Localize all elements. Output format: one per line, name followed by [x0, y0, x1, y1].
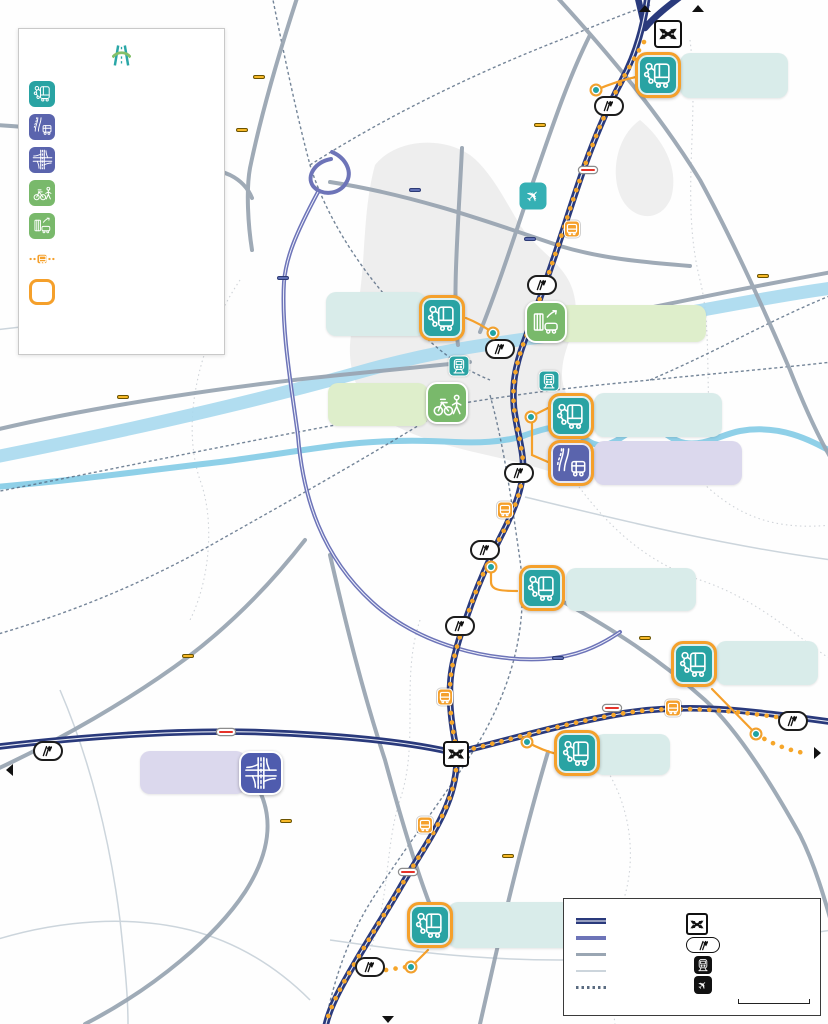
legend-row-axes-principaux: [576, 946, 680, 963]
road-badge-d910-north: [534, 123, 546, 127]
interchange-multimodal-icon: [29, 114, 55, 140]
exit-icon: [535, 279, 546, 291]
motorway-node-icon: [686, 913, 708, 935]
interchange-icon-joue: [239, 751, 283, 795]
train-icon: [451, 358, 468, 375]
legend-row-voies-ferrees: [576, 979, 680, 996]
road-badge-d943: [639, 636, 651, 640]
stop-dot-esvres: [750, 728, 763, 741]
scale-bar-line: [738, 999, 810, 1004]
road-badge-a85-west: [217, 729, 235, 735]
road-badge-d952-west: [117, 395, 129, 399]
legend-row-noeud: [686, 913, 810, 935]
marker-label-passerelles: [328, 383, 428, 426]
exit-20: [527, 275, 557, 295]
express-stop-icon-a85: [665, 700, 681, 717]
pem-icon-parcay: [635, 52, 681, 98]
road-badge-d910-south: [502, 854, 514, 858]
interchange-icon: [29, 147, 55, 173]
arrow-right-vierzon: [814, 747, 821, 759]
exit-21: [485, 339, 515, 359]
legend-symbols-column: ✈: [686, 913, 810, 1004]
pem-bus-network-icon: [677, 647, 711, 681]
arrow-down-bordeaux: [382, 1016, 394, 1023]
pem-bus-network-icon: [554, 399, 588, 433]
road-badge-m37-west: [277, 276, 289, 280]
road-badge-d751: [182, 654, 194, 658]
exit-icon: [453, 620, 464, 632]
roads-bus-icon: [554, 446, 588, 480]
motorway-node-icon-north: [654, 20, 682, 48]
acoustic-screen-icon-map: [525, 301, 567, 343]
marker-label-echangeur-joue: [140, 751, 246, 794]
legend-item-car-express: [29, 246, 214, 272]
crossing-arrows-icon: [445, 742, 467, 766]
interchange-roads-icon: [32, 149, 53, 170]
arrow-up-paris: [692, 5, 704, 12]
pem-icon-chambray: [519, 565, 565, 611]
bike-pedestrian-icon: [431, 387, 464, 420]
railway-line-swatch: [576, 986, 606, 989]
title-line-2: [29, 41, 214, 69]
cartographic-legend: ✈: [563, 898, 821, 1016]
exit-icon: [512, 467, 523, 479]
road-badge-d86: [280, 819, 292, 823]
station-icon-gare-tours: [449, 356, 470, 377]
road-badge-a10-south: [399, 869, 417, 875]
stop-dot-sorigny: [405, 961, 418, 974]
road-badge-d952-east: [757, 274, 769, 278]
road-badge-d959: [236, 128, 248, 132]
marker-label-pem-veigne: [594, 734, 670, 775]
motorway-pictogram-icon: [112, 44, 131, 66]
legend-row-aeroport: ✈: [686, 975, 810, 995]
stop-dot-chambray: [485, 561, 498, 574]
legend-row-autoroute: [576, 913, 680, 930]
road-badge-a10-north: [579, 167, 597, 173]
exit-icon: [493, 343, 504, 355]
interchange-roads-icon: [244, 756, 278, 790]
legend-item-ecrans: [29, 213, 214, 239]
exit-icon: [478, 544, 489, 556]
express-stop-icon-rochecorbon: [564, 221, 580, 238]
stop-dot-veigne: [521, 736, 534, 749]
bus-icon: [565, 222, 579, 237]
pem-icon-rochepinard: [548, 393, 594, 439]
pem-bus-network-icon: [560, 736, 594, 770]
bus-icon: [498, 503, 512, 518]
secondary-line-swatch: [576, 970, 606, 972]
pem-icon-veigne: [554, 730, 600, 776]
pem-icon-tours-centre: [419, 295, 465, 341]
airport-icon: ✈: [694, 976, 712, 994]
legend-lines-column: [576, 913, 680, 1004]
station-icon-gare-tgv: [539, 371, 560, 392]
dotted-line-bus-icon: [29, 251, 55, 267]
pem-bus-network-icon: [641, 58, 675, 92]
express-stop-icon-a10: [437, 689, 453, 706]
pem-icon-sorigny: [407, 902, 453, 948]
marker-label-pem-esvres: [716, 641, 818, 685]
legend-row-gare: [686, 955, 810, 975]
title-card: [18, 28, 225, 355]
motorway-node-icon-south: [443, 741, 469, 767]
express-line-icon: [29, 246, 55, 272]
express-stop-icon: [29, 279, 55, 305]
crossing-arrows-icon: [688, 915, 706, 934]
peripherique-line-swatch: [576, 936, 606, 940]
scale-bar: [738, 999, 810, 1004]
principal-line-swatch: [576, 953, 606, 957]
train-icon: [541, 373, 558, 390]
marker-label-echangeur-rochepinard: [594, 441, 742, 485]
exit-24-1: [355, 957, 385, 977]
bus-icon: [666, 701, 680, 716]
airport-icon-map: ✈: [520, 183, 547, 210]
bus-icon: [438, 690, 452, 705]
exit-22: [504, 463, 534, 483]
road-badge-m801-a: [409, 188, 421, 192]
exit-10: [778, 711, 808, 731]
pem-bus-network-icon: [425, 301, 459, 335]
legend-item-echangeur: [29, 147, 214, 173]
metro-station-icon: [694, 956, 712, 974]
plane-glyph: ✈: [521, 184, 545, 208]
legend-row-acces: [686, 935, 810, 955]
bike-pedestrian-icon: [32, 182, 53, 203]
legend-item-pem: [29, 81, 214, 107]
arrow-up-le-mans: [639, 5, 651, 12]
stop-dot-tours-centre: [487, 327, 500, 340]
train-icon: [696, 958, 710, 972]
legend-row-axes-secondaires: [576, 963, 680, 980]
road-badge-d938: [253, 75, 265, 79]
legend-item-passerelles: [29, 180, 214, 206]
legend-row-peripherique: [576, 930, 680, 947]
pem-icon-esvres: [671, 641, 717, 687]
legend-item-echangeur-multimodal: [29, 114, 214, 140]
exit-icon: [363, 961, 374, 973]
pem-icon: [29, 81, 55, 107]
road-badge-m801-b: [524, 237, 536, 241]
footbridge-icon-map: [426, 382, 468, 424]
road-badge-m37-south: [552, 656, 564, 660]
screen-car-icon: [530, 306, 562, 338]
marker-label-pem-rochepinard: [594, 393, 722, 437]
interchange-multimodal-icon-map: [548, 440, 594, 486]
acoustic-screen-icon: [29, 213, 55, 239]
road-badge-a85-east: [603, 705, 621, 711]
plane-glyph: ✈: [695, 977, 711, 993]
express-stop-icon-a10-south: [417, 817, 433, 834]
project-legend: [29, 81, 214, 305]
stop-dot-parcay: [590, 84, 603, 97]
exit-icon: [602, 100, 613, 112]
motorway-access-icon: [686, 937, 720, 953]
exit-23: [470, 540, 500, 560]
exit-9: [33, 741, 63, 761]
pem-bus-network-icon: [32, 83, 53, 104]
exit-icon: [786, 715, 797, 727]
pem-bus-network-icon: [525, 571, 559, 605]
marker-label-pem-chambray: [566, 568, 696, 611]
crossing-arrows-icon: [656, 21, 680, 47]
map-poster: ✈: [0, 0, 828, 1024]
marker-label-pem-tours-centre: [326, 292, 426, 336]
roads-bus-icon: [32, 116, 53, 137]
express-stop-icon-stavertin: [497, 502, 513, 519]
bus-icon: [418, 818, 432, 833]
pem-bus-network-icon: [413, 908, 447, 942]
marker-label-pem-parcay: [680, 53, 788, 98]
autoroute-line-swatch: [576, 918, 606, 924]
exit-24: [445, 616, 475, 636]
stop-dot-rochepinard: [525, 411, 538, 424]
legend-item-arret: [29, 279, 214, 305]
marker-label-ecrans: [558, 305, 706, 342]
urban-area-parcay: [616, 120, 674, 216]
arrow-left-angers: [6, 764, 13, 776]
exit-icon: [698, 940, 708, 951]
motorway-a10: [326, 0, 648, 1024]
screen-car-icon: [32, 215, 53, 236]
exit-19: [594, 96, 624, 116]
exit-icon: [41, 745, 52, 757]
footbridge-icon: [29, 180, 55, 206]
